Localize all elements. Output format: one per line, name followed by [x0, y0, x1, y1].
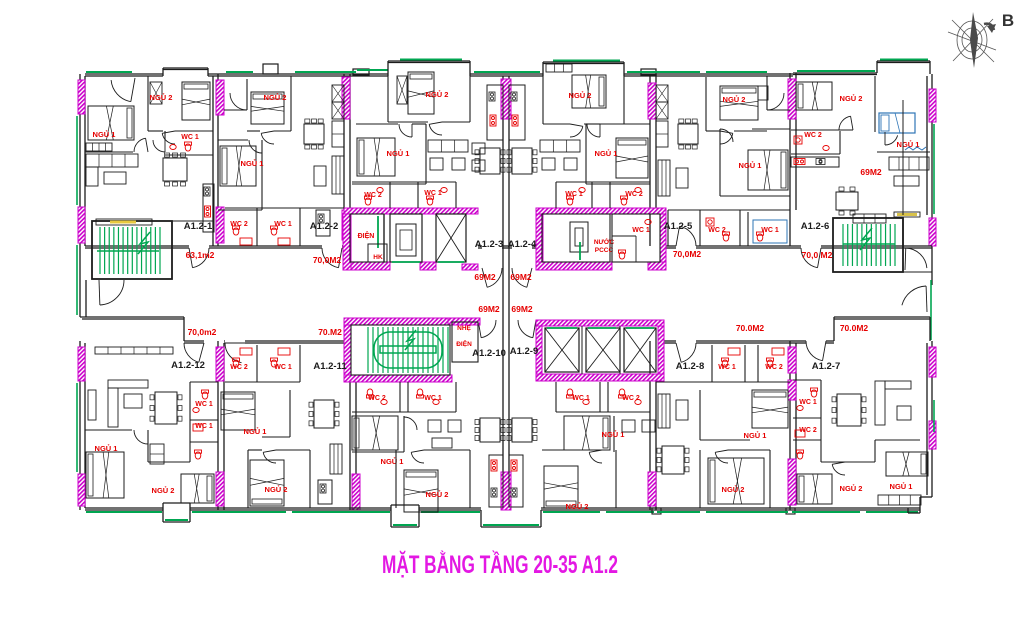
svg-text:NGỦ 1: NGỦ 1: [595, 149, 618, 158]
svg-text:NGỦ 1: NGỦ 1: [241, 159, 264, 168]
svg-text:NGỦ 1: NGỦ 1: [890, 482, 913, 491]
svg-text:WC 2: WC 2: [230, 221, 248, 228]
svg-text:70.0M2: 70.0M2: [736, 323, 765, 333]
svg-text:NGỦ 2: NGỦ 2: [152, 486, 175, 495]
svg-text:NGỦ 2: NGỦ 2: [723, 95, 746, 104]
svg-text:NGỦ 2: NGỦ 2: [840, 94, 863, 103]
svg-text:A1.2-6: A1.2-6: [801, 221, 830, 232]
svg-text:WC 1: WC 1: [718, 364, 736, 371]
svg-text:WC 1: WC 1: [195, 401, 213, 408]
svg-text:NGỦ 2: NGỦ 2: [426, 490, 449, 499]
svg-text:WC 2: WC 2: [622, 395, 640, 402]
svg-text:PCCC: PCCC: [595, 247, 614, 254]
svg-text:WC 1: WC 1: [565, 191, 583, 198]
svg-text:NGỦ 1: NGỦ 1: [602, 430, 625, 439]
svg-text:NGỦ 1: NGỦ 1: [739, 161, 762, 170]
svg-text:HK: HK: [373, 254, 383, 261]
svg-text:70,0M2: 70,0M2: [673, 249, 702, 259]
svg-text:WC 1: WC 1: [195, 423, 213, 430]
svg-text:WC 2: WC 2: [799, 427, 817, 434]
svg-text:69M2: 69M2: [511, 304, 533, 314]
svg-text:70,0 M2: 70,0 M2: [802, 250, 833, 260]
svg-text:WC 1: WC 1: [799, 399, 817, 406]
svg-text:NGỦ 2: NGỦ 2: [426, 90, 449, 99]
svg-text:A1.2-10: A1.2-10: [472, 348, 506, 359]
svg-text:70.0M2: 70.0M2: [840, 323, 869, 333]
svg-text:NƯỚC: NƯỚC: [594, 237, 615, 246]
svg-text:A1.2-1: A1.2-1: [184, 221, 213, 232]
svg-text:A1.2-8: A1.2-8: [676, 361, 705, 372]
svg-text:A1.2-11: A1.2-11: [313, 361, 347, 372]
svg-text:63,1m2: 63,1m2: [186, 250, 215, 260]
svg-text:WC 2: WC 2: [364, 192, 382, 199]
svg-text:NHẸ: NHẸ: [457, 325, 471, 332]
svg-text:NGỦ 1: NGỦ 1: [93, 130, 116, 139]
svg-text:WC 1: WC 1: [274, 364, 292, 371]
svg-text:70.M2: 70.M2: [318, 327, 342, 337]
svg-text:WC 1: WC 1: [632, 227, 650, 234]
svg-text:A1.2-3: A1.2-3: [475, 239, 504, 250]
svg-text:NGỦ 1: NGỦ 1: [744, 431, 767, 440]
svg-text:WC 2: WC 2: [708, 227, 726, 234]
svg-text:WC 1: WC 1: [761, 227, 779, 234]
svg-text:ĐIỆN: ĐIỆN: [456, 339, 472, 348]
svg-text:A1.2-4: A1.2-4: [508, 239, 537, 250]
svg-text:69M2: 69M2: [510, 272, 532, 282]
svg-text:WC 1: WC 1: [424, 395, 442, 402]
svg-text:NGỦ 2: NGỦ 2: [150, 93, 173, 102]
svg-text:WC 2: WC 2: [765, 364, 783, 371]
svg-text:NGỦ 2: NGỦ 2: [264, 93, 287, 102]
svg-text:WC 2: WC 2: [625, 191, 643, 198]
svg-text:NGỦ 2: NGỦ 2: [722, 485, 745, 494]
svg-text:WC 1: WC 1: [572, 395, 590, 402]
svg-text:A1.2-12: A1.2-12: [171, 360, 205, 371]
svg-text:70,0M2: 70,0M2: [313, 255, 342, 265]
svg-text:69M2: 69M2: [478, 304, 500, 314]
svg-text:WC 1: WC 1: [181, 134, 199, 141]
svg-text:69M2: 69M2: [474, 272, 496, 282]
svg-text:A1.2-7: A1.2-7: [812, 361, 841, 372]
svg-text:MẶT BẰNG TẦNG 20-35 A1.2: MẶT BẰNG TẦNG 20-35 A1.2: [382, 550, 618, 579]
svg-text:NGỦ 1: NGỦ 1: [95, 444, 118, 453]
svg-text:A1.2-5: A1.2-5: [664, 221, 693, 232]
svg-text:NGỦ 2: NGỦ 2: [265, 485, 288, 494]
svg-text:ĐIỆN: ĐIỆN: [358, 231, 375, 240]
svg-text:WC 1: WC 1: [274, 221, 292, 228]
svg-text:NGỦ 1: NGỦ 1: [244, 427, 267, 436]
svg-text:NGỦ 2: NGỦ 2: [840, 484, 863, 493]
svg-text:NGỦ 2: NGỦ 2: [569, 91, 592, 100]
svg-text:WC 1: WC 1: [424, 190, 442, 197]
svg-text:WC 2: WC 2: [368, 395, 386, 402]
svg-text:A1.2-2: A1.2-2: [310, 221, 339, 232]
svg-text:NGỦ 1: NGỦ 1: [381, 457, 404, 466]
svg-text:B: B: [1002, 11, 1014, 30]
svg-text:NGỦ 1: NGỦ 1: [387, 149, 410, 158]
svg-text:WC 2: WC 2: [230, 364, 248, 371]
svg-text:70,0m2: 70,0m2: [188, 327, 217, 337]
svg-text:WC 2: WC 2: [804, 132, 822, 139]
svg-text:69M2: 69M2: [860, 167, 882, 177]
svg-text:A1.2-9: A1.2-9: [510, 346, 539, 357]
svg-text:NGỦ 2: NGỦ 2: [566, 502, 589, 511]
